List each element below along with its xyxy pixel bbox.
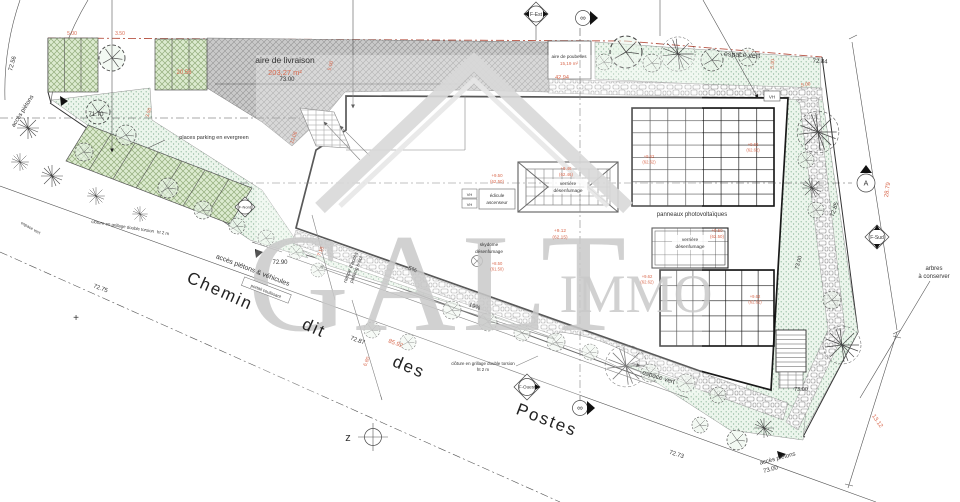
svg-text:∞: ∞ (577, 404, 583, 413)
places-parking-label: places parking en evergreen (179, 135, 248, 141)
stairs (776, 330, 806, 388)
line: (61.50) (490, 267, 504, 272)
line: désenfumage (475, 249, 503, 254)
line: skydome (480, 242, 499, 247)
dim-28-79: 28.79 (884, 181, 892, 197)
elev-verriere-1: +9.46(62.46) (559, 166, 573, 177)
line: (62.46) (559, 172, 573, 177)
line: (62.62) (748, 300, 762, 305)
line: ascenseur (486, 200, 508, 205)
line: désenfumage (553, 188, 582, 194)
line: édicule (490, 193, 505, 198)
dim-5-00-b: 5.00 (770, 59, 777, 69)
cloture-left-label: clôture en grillage double torsionht 2 m (91, 219, 170, 236)
line: (62.50) (710, 234, 724, 239)
line: (62.62) (642, 160, 656, 165)
svg-text:F-Sud: F-Sud (870, 235, 884, 241)
level-72-73: 72.73 (668, 450, 685, 461)
line: +9.62 (750, 294, 761, 299)
elev-pv-2: +9.62(62.62) (746, 142, 760, 153)
parking-block-2 (155, 39, 207, 90)
elev-skydome: +8.50(61.50) (490, 261, 504, 272)
line: +9.62 (642, 274, 653, 279)
line: +9.46 (560, 166, 572, 171)
panneaux-label: panneaux photovoltaïques (657, 212, 727, 218)
vh-label-1: VH (467, 192, 473, 197)
line: ht 2 m (157, 229, 170, 236)
level-72-75: 72.75 (92, 284, 109, 295)
watermark: GALT IMMO (248, 55, 713, 395)
marker-f-est: F-Est (524, 2, 548, 26)
line: verrière (682, 237, 699, 243)
cross-mark: + (73, 313, 79, 324)
svg-text:∞: ∞ (580, 14, 586, 23)
elev-pv-4: +9.62(62.62) (748, 294, 762, 305)
verriere-1-label: verrière désenfumage (549, 179, 587, 194)
vh-label-2: VH (467, 202, 473, 207)
svg-text:F-Ouest: F-Ouest (519, 385, 536, 390)
marker-survey-top: ∞ (576, 11, 599, 26)
marker-f-sud: F-Sud (865, 225, 889, 249)
espace-vert-left-label: espace vert (20, 220, 42, 236)
line: désenfumage (675, 244, 704, 250)
svg-text:verrière: verrière (682, 237, 699, 243)
dim-3-50-a: 3.50 (115, 31, 125, 37)
elev-pv-1: +9.62(62.62) (642, 154, 656, 165)
dim-13-12: 13.12 (870, 414, 884, 430)
arbres-label-1: arbres (925, 266, 942, 272)
aire-livraison-surface: 203,27 m² (268, 68, 302, 77)
aire-poubelles-label: aire de poubelles (552, 54, 588, 59)
svg-text:A: A (864, 180, 869, 187)
line: clôture en grillage double torsion (91, 219, 155, 234)
svg-text:VH: VH (769, 95, 775, 100)
vh-box-roof: VH (764, 91, 780, 101)
watermark-suffix: IMMO (559, 264, 712, 324)
level-72-56: 72.56 (8, 55, 18, 72)
level-73-00-se: 73.00 (763, 465, 780, 475)
svg-text:désenfumage: désenfumage (675, 244, 704, 250)
line: (62.62) (746, 148, 760, 153)
level-73-00-top: 73.00 (279, 77, 295, 83)
compass-label: z (345, 432, 351, 444)
marker-survey-bottom: ∞ (573, 401, 596, 416)
street-word-postes: Postes (514, 400, 581, 441)
svg-text:F-Est: F-Est (530, 12, 543, 18)
line: +8.50 (492, 261, 503, 266)
parking-block-1 (48, 38, 98, 92)
line: ht 2 m (477, 367, 490, 372)
line: +9.50 (491, 173, 503, 178)
aire-livraison-label: aire de livraison (255, 55, 315, 65)
elev-pv-3: +9.62(62.62) (640, 274, 654, 285)
line: (62.62) (640, 280, 654, 285)
line: clôture en grillage double torsion (451, 361, 515, 366)
dim-42-94: 42,94 (555, 75, 569, 81)
verriere-2-label: verrière désenfumage (672, 235, 708, 250)
marker-section-a: A (857, 165, 875, 192)
elev-edicule: +9.50(62.50) (490, 173, 504, 184)
dim-5-00-a: 5.00 (67, 31, 77, 37)
line: +9.50 (711, 228, 723, 233)
site-plan-drawing: GALT IMMO F-Est ∞ A F-Sud F-Ouest ∞ F-No… (0, 0, 960, 502)
compass: z (345, 423, 388, 451)
elev-verriere-2: +9.50(62.50) (710, 228, 724, 239)
svg-text:verrière: verrière (560, 181, 577, 187)
line: +9.62 (748, 142, 759, 147)
level-73-00-stairs: 73.00 (794, 387, 808, 393)
line: (62.15) (552, 235, 568, 241)
dim-20-56: 20.56 (176, 70, 192, 76)
line: (62.50) (490, 179, 504, 184)
line: +9.12 (554, 228, 566, 234)
level-72-84: 72.84 (812, 58, 828, 65)
plan-canvas: GALT IMMO F-Est ∞ A F-Sud F-Ouest ∞ F-No… (0, 0, 960, 502)
arbres-label-2: à conserver (918, 274, 949, 280)
svg-text:désenfumage: désenfumage (553, 188, 582, 194)
aire-poubelles-surface: 15,19 m² (560, 61, 579, 66)
line: +9.62 (644, 154, 655, 159)
level-71-70: 71.70 (88, 112, 104, 118)
level-72-90: 72.90 (272, 260, 288, 266)
svg-text:F-Nord: F-Nord (239, 205, 251, 210)
line: verrière (560, 181, 577, 187)
